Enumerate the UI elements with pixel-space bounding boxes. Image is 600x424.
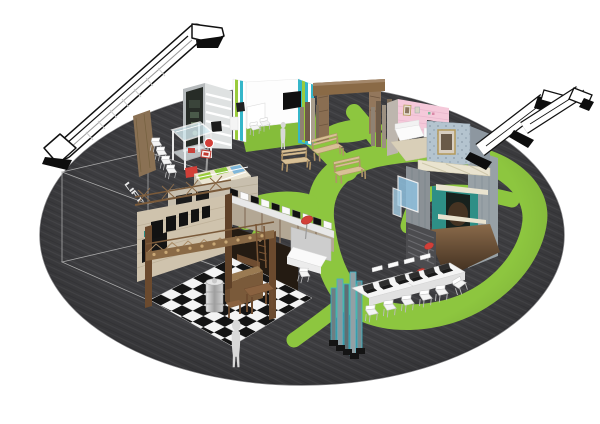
red-sign-disc: [205, 139, 214, 148]
bottom-trim: [42, 157, 72, 170]
brew-tank: [206, 279, 223, 313]
front-post: [145, 225, 152, 308]
interior-glow: [448, 202, 468, 226]
exhibition-render: LIFT: [0, 0, 600, 424]
picture-frame: [403, 105, 411, 115]
black-seat: [236, 102, 245, 112]
framed-portrait: [441, 134, 452, 150]
black-pouf: [211, 121, 222, 132]
red-exhibit: [188, 148, 195, 153]
scene-canvas: LIFT: [0, 0, 600, 424]
small-frame: [415, 107, 420, 113]
mini-fridge: [230, 117, 238, 130]
tv-screen: [283, 91, 301, 110]
wall-accent: [432, 113, 435, 116]
wall-accent: [428, 112, 431, 115]
glass-pane: [393, 188, 401, 217]
